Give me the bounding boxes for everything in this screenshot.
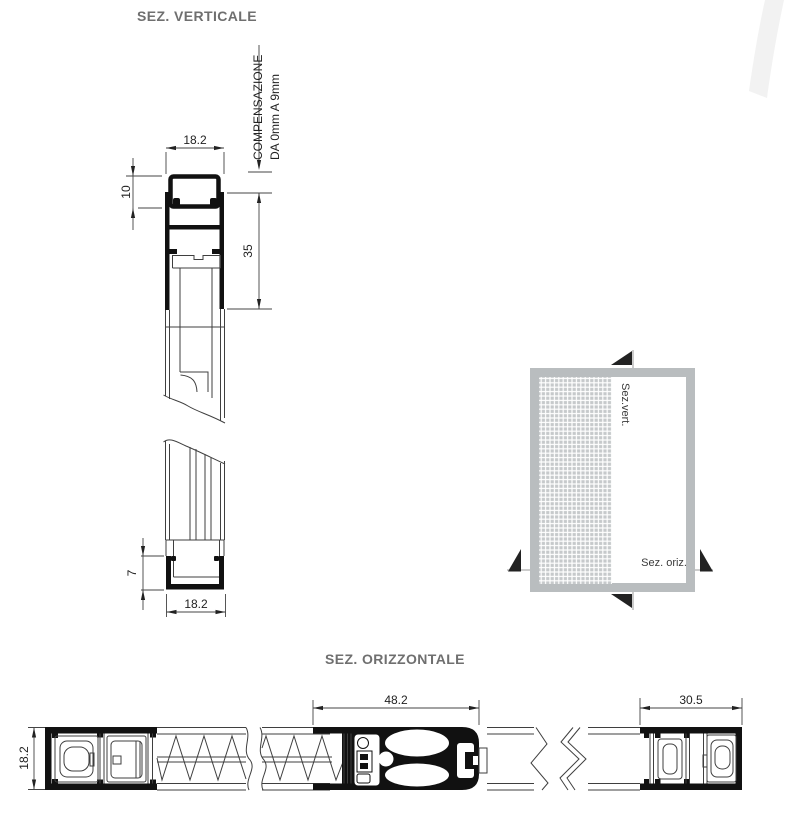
bottom-channel-profile bbox=[166, 556, 224, 590]
compensation-note: COMPENSAZIONE DA 0mm A 9mm bbox=[227, 45, 282, 193]
dim-handle-bar-width: 48.2 bbox=[313, 693, 479, 725]
dim-profile-height: 18.2 bbox=[17, 728, 48, 790]
dim-bottom-width: 18.2 bbox=[167, 594, 226, 617]
dim-top-width-label: 18.2 bbox=[183, 133, 207, 147]
compensation-note-line2: DA 0mm A 9mm bbox=[268, 74, 282, 160]
dim-top-width: 18.2 bbox=[166, 133, 224, 174]
sliding-screen-profile bbox=[164, 256, 226, 578]
handle-bar-profile bbox=[262, 727, 487, 790]
dim-side-profile-width: 30.5 bbox=[640, 693, 742, 725]
horizontal-cut-label: Sez. oriz. bbox=[641, 557, 687, 569]
vertical-cut-label: Sez.vert. bbox=[619, 383, 631, 426]
section-arrow-right-icon bbox=[700, 549, 713, 572]
section-arrow-bottom-icon bbox=[611, 594, 632, 608]
section-arrow-top-icon bbox=[611, 351, 632, 365]
dim-channel-height-label: 7 bbox=[125, 569, 139, 576]
left-frame-profile bbox=[45, 727, 157, 790]
dim-handle-bar-width-label: 48.2 bbox=[384, 693, 408, 707]
dim-cassette-height: 10 bbox=[119, 158, 162, 230]
vertical-section-drawing: 18.2 COMPENSAZIONE DA 0mm A 9mm 10 35 bbox=[60, 30, 320, 640]
horizontal-section-title: SEZ. ORIZZONTALE bbox=[325, 651, 465, 667]
dim-bottom-width-label: 18.2 bbox=[184, 597, 208, 611]
left-mesh-track bbox=[157, 728, 266, 791]
top-cassette-profile bbox=[165, 177, 224, 311]
compensation-note-line1: COMPENSAZIONE bbox=[251, 55, 265, 160]
right-frame-profile bbox=[640, 727, 742, 790]
dim-frame-depth: 35 bbox=[227, 193, 272, 309]
horizontal-section-drawing: 18.2 bbox=[15, 685, 785, 810]
overview-diagram: Sez.vert. Sez. oriz. bbox=[500, 340, 730, 620]
dim-cassette-height-label: 10 bbox=[119, 185, 133, 199]
watermark-swoosh bbox=[728, 0, 800, 110]
dim-channel-height: 7 bbox=[125, 538, 164, 610]
section-arrow-left-icon bbox=[508, 549, 521, 572]
dim-side-profile-width-label: 30.5 bbox=[679, 693, 703, 707]
dim-profile-height-label: 18.2 bbox=[17, 746, 31, 770]
right-mesh-track bbox=[487, 728, 640, 791]
dim-frame-depth-label: 35 bbox=[241, 244, 255, 258]
drawing-sheet: SEZ. VERTICALE SEZ. ORIZZONTALE 18.2 COM… bbox=[0, 0, 800, 817]
vertical-section-title: SEZ. VERTICALE bbox=[137, 8, 257, 24]
mesh-panel bbox=[539, 377, 612, 584]
